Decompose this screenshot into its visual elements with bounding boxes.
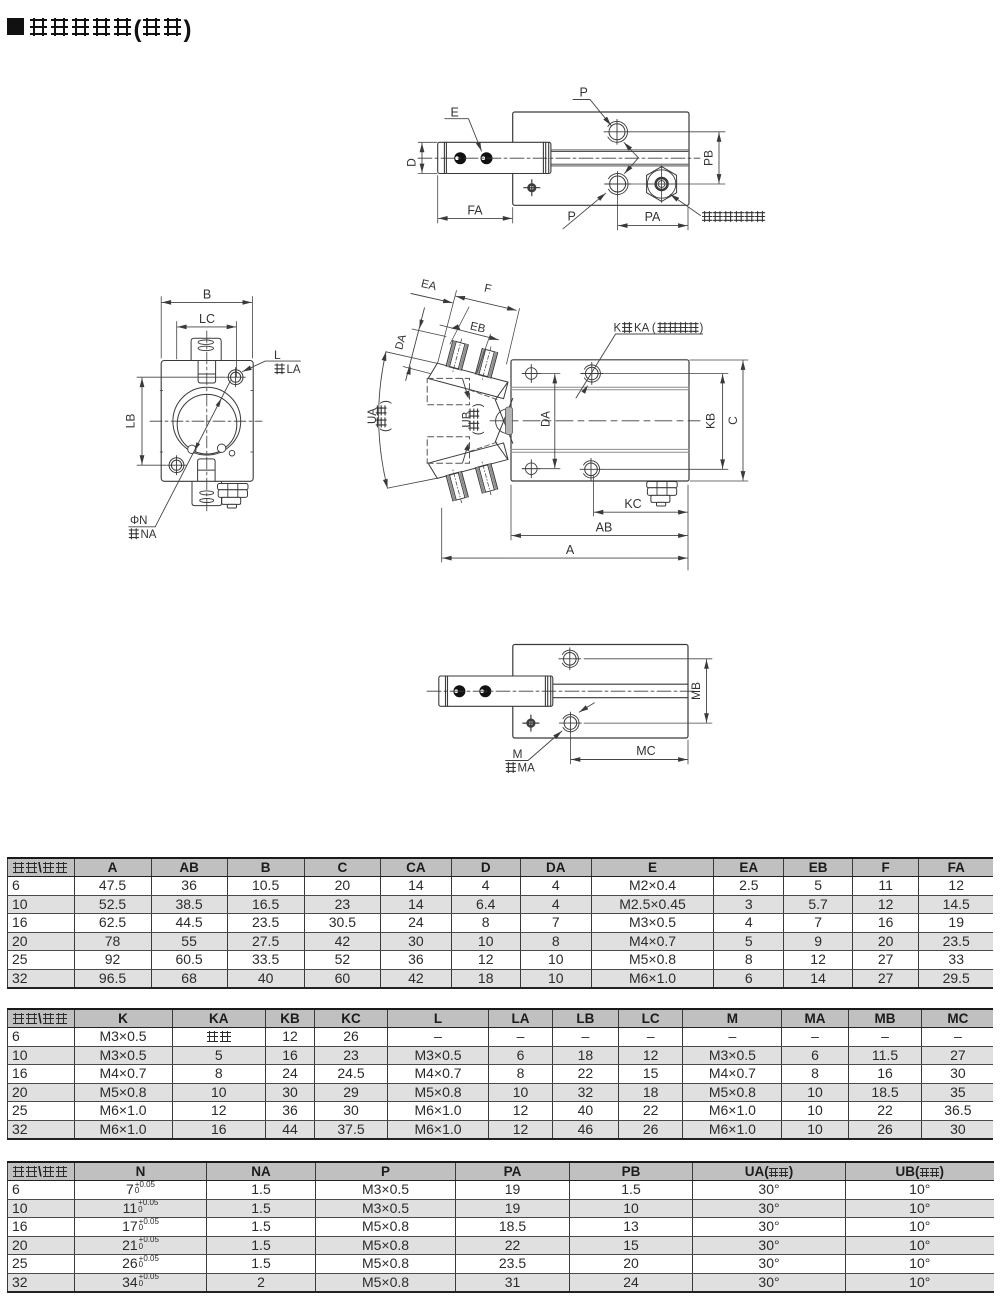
svg-text:EA: EA — [420, 278, 438, 293]
svg-text:KA (: KA ( — [634, 323, 656, 335]
svg-text:LC: LC — [199, 312, 215, 326]
svg-text:L: L — [274, 348, 281, 362]
svg-text:M: M — [513, 747, 523, 761]
svg-text:A: A — [566, 543, 575, 557]
svg-text:DA: DA — [541, 411, 553, 427]
svg-text:F: F — [483, 282, 493, 295]
svg-text:MC: MC — [636, 744, 655, 758]
svg-text:PA: PA — [645, 210, 661, 224]
svg-text:FA: FA — [467, 204, 483, 218]
svg-text:(: ( — [380, 428, 392, 432]
svg-text:E: E — [451, 106, 459, 120]
svg-text:KC: KC — [624, 497, 641, 511]
svg-text:MB: MB — [689, 682, 703, 700]
svg-text:B: B — [203, 288, 211, 302]
svg-text:D: D — [405, 158, 419, 167]
svg-text:MA: MA — [518, 763, 536, 775]
svg-text:P: P — [580, 86, 588, 100]
svg-text:DA: DA — [393, 333, 409, 352]
svg-text:UB: UB — [461, 411, 473, 427]
svg-text:K: K — [614, 323, 622, 335]
svg-text:KB: KB — [704, 413, 718, 429]
svg-text:PB: PB — [702, 150, 716, 166]
svg-text:): ) — [473, 403, 485, 407]
svg-text:LB: LB — [124, 414, 138, 429]
svg-text:C: C — [726, 416, 740, 425]
svg-text:(: ( — [473, 431, 485, 435]
svg-text:): ) — [380, 400, 392, 404]
svg-text:NA: NA — [141, 529, 157, 541]
svg-text:ΦN: ΦN — [130, 515, 147, 527]
svg-text:AB: AB — [596, 521, 613, 535]
svg-text:): ) — [700, 323, 704, 335]
svg-text:LA: LA — [287, 364, 301, 376]
